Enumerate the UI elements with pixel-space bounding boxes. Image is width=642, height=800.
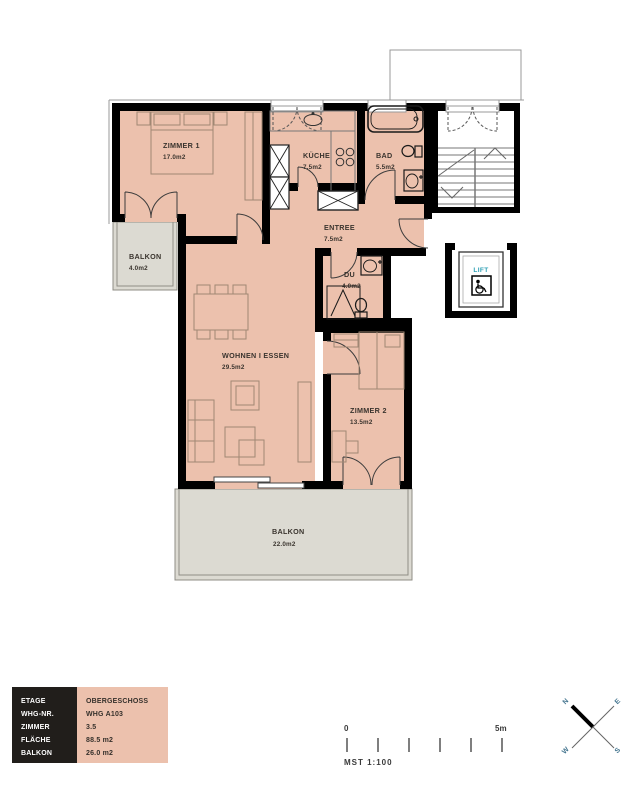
area-balkon-gross: 22.0m2	[273, 541, 296, 548]
legend-value-balkon: 26.0 m2	[86, 747, 168, 760]
scale-caption: MST 1:100	[344, 758, 393, 767]
legend-value-flaeche: 88.5 m2	[86, 734, 168, 747]
area-bad: 5.5m2	[376, 164, 395, 171]
floorplan-page: LIFT	[0, 0, 642, 800]
area-zimmer1: 17.0m2	[163, 154, 186, 161]
label-zimmer2: ZIMMER 2	[350, 406, 387, 415]
stairwell-entry-window	[446, 100, 499, 112]
area-entree: 7.5m2	[324, 236, 343, 243]
kitchen-window	[271, 100, 323, 112]
legend-label-zimmer: ZIMMER	[21, 721, 77, 734]
compass-s: S	[614, 747, 622, 755]
compass-w: W	[561, 746, 571, 756]
area-wohnen: 29.5m2	[222, 364, 245, 371]
floorplan-svg: LIFT	[0, 0, 642, 800]
tall-cabinets	[270, 145, 289, 209]
legend-label-balkon: BALKON	[21, 747, 77, 760]
label-balkon-klein: BALKON	[129, 252, 162, 261]
legend-value-etage: OBERGESCHOSS	[86, 695, 168, 708]
stairwell	[438, 148, 514, 207]
scale-end: 5m	[495, 724, 507, 733]
lift: LIFT	[459, 252, 503, 307]
legend-label-whgnr: WHG-NR.	[21, 708, 77, 721]
area-balkon-klein: 4.0m2	[129, 265, 148, 272]
label-bad: BAD	[376, 151, 392, 160]
label-entree: ENTREE	[324, 223, 355, 232]
compass-e: E	[614, 698, 622, 706]
legend-label-flaeche: FLÄCHE	[21, 734, 77, 747]
lift-label: LIFT	[473, 267, 488, 274]
wheelchair-icon	[472, 276, 491, 295]
label-balkon-gross: BALKON	[272, 527, 305, 536]
scale-bar: 0 5m MST 1:100	[344, 724, 507, 767]
legend-value-zimmer: 3.5	[86, 721, 168, 734]
area-du: 4.0m2	[342, 283, 361, 290]
entree-shaft-box	[318, 191, 358, 210]
label-wohnen: WOHNEN I ESSEN	[222, 351, 289, 360]
label-du: DU	[344, 270, 355, 279]
compass-n: N	[562, 698, 571, 707]
legend-label-etage: ETAGE	[21, 695, 77, 708]
scale-start: 0	[344, 724, 349, 733]
label-zimmer1: ZIMMER 1	[163, 141, 200, 150]
label-kueche: KÜCHE	[303, 151, 330, 160]
title-block-labels: ETAGE WHG-NR. ZIMMER FLÄCHE BALKON	[12, 687, 77, 763]
title-block: ETAGE WHG-NR. ZIMMER FLÄCHE BALKON OBERG…	[12, 687, 168, 763]
compass-north-arm	[572, 706, 593, 727]
title-block-values: OBERGESCHOSS WHG A103 3.5 88.5 m2 26.0 m…	[77, 687, 168, 763]
area-zimmer2: 13.5m2	[350, 419, 373, 426]
legend-value-whgnr: WHG A103	[86, 708, 168, 721]
area-kueche: 7.5m2	[303, 164, 322, 171]
compass: N E W S	[561, 698, 622, 756]
